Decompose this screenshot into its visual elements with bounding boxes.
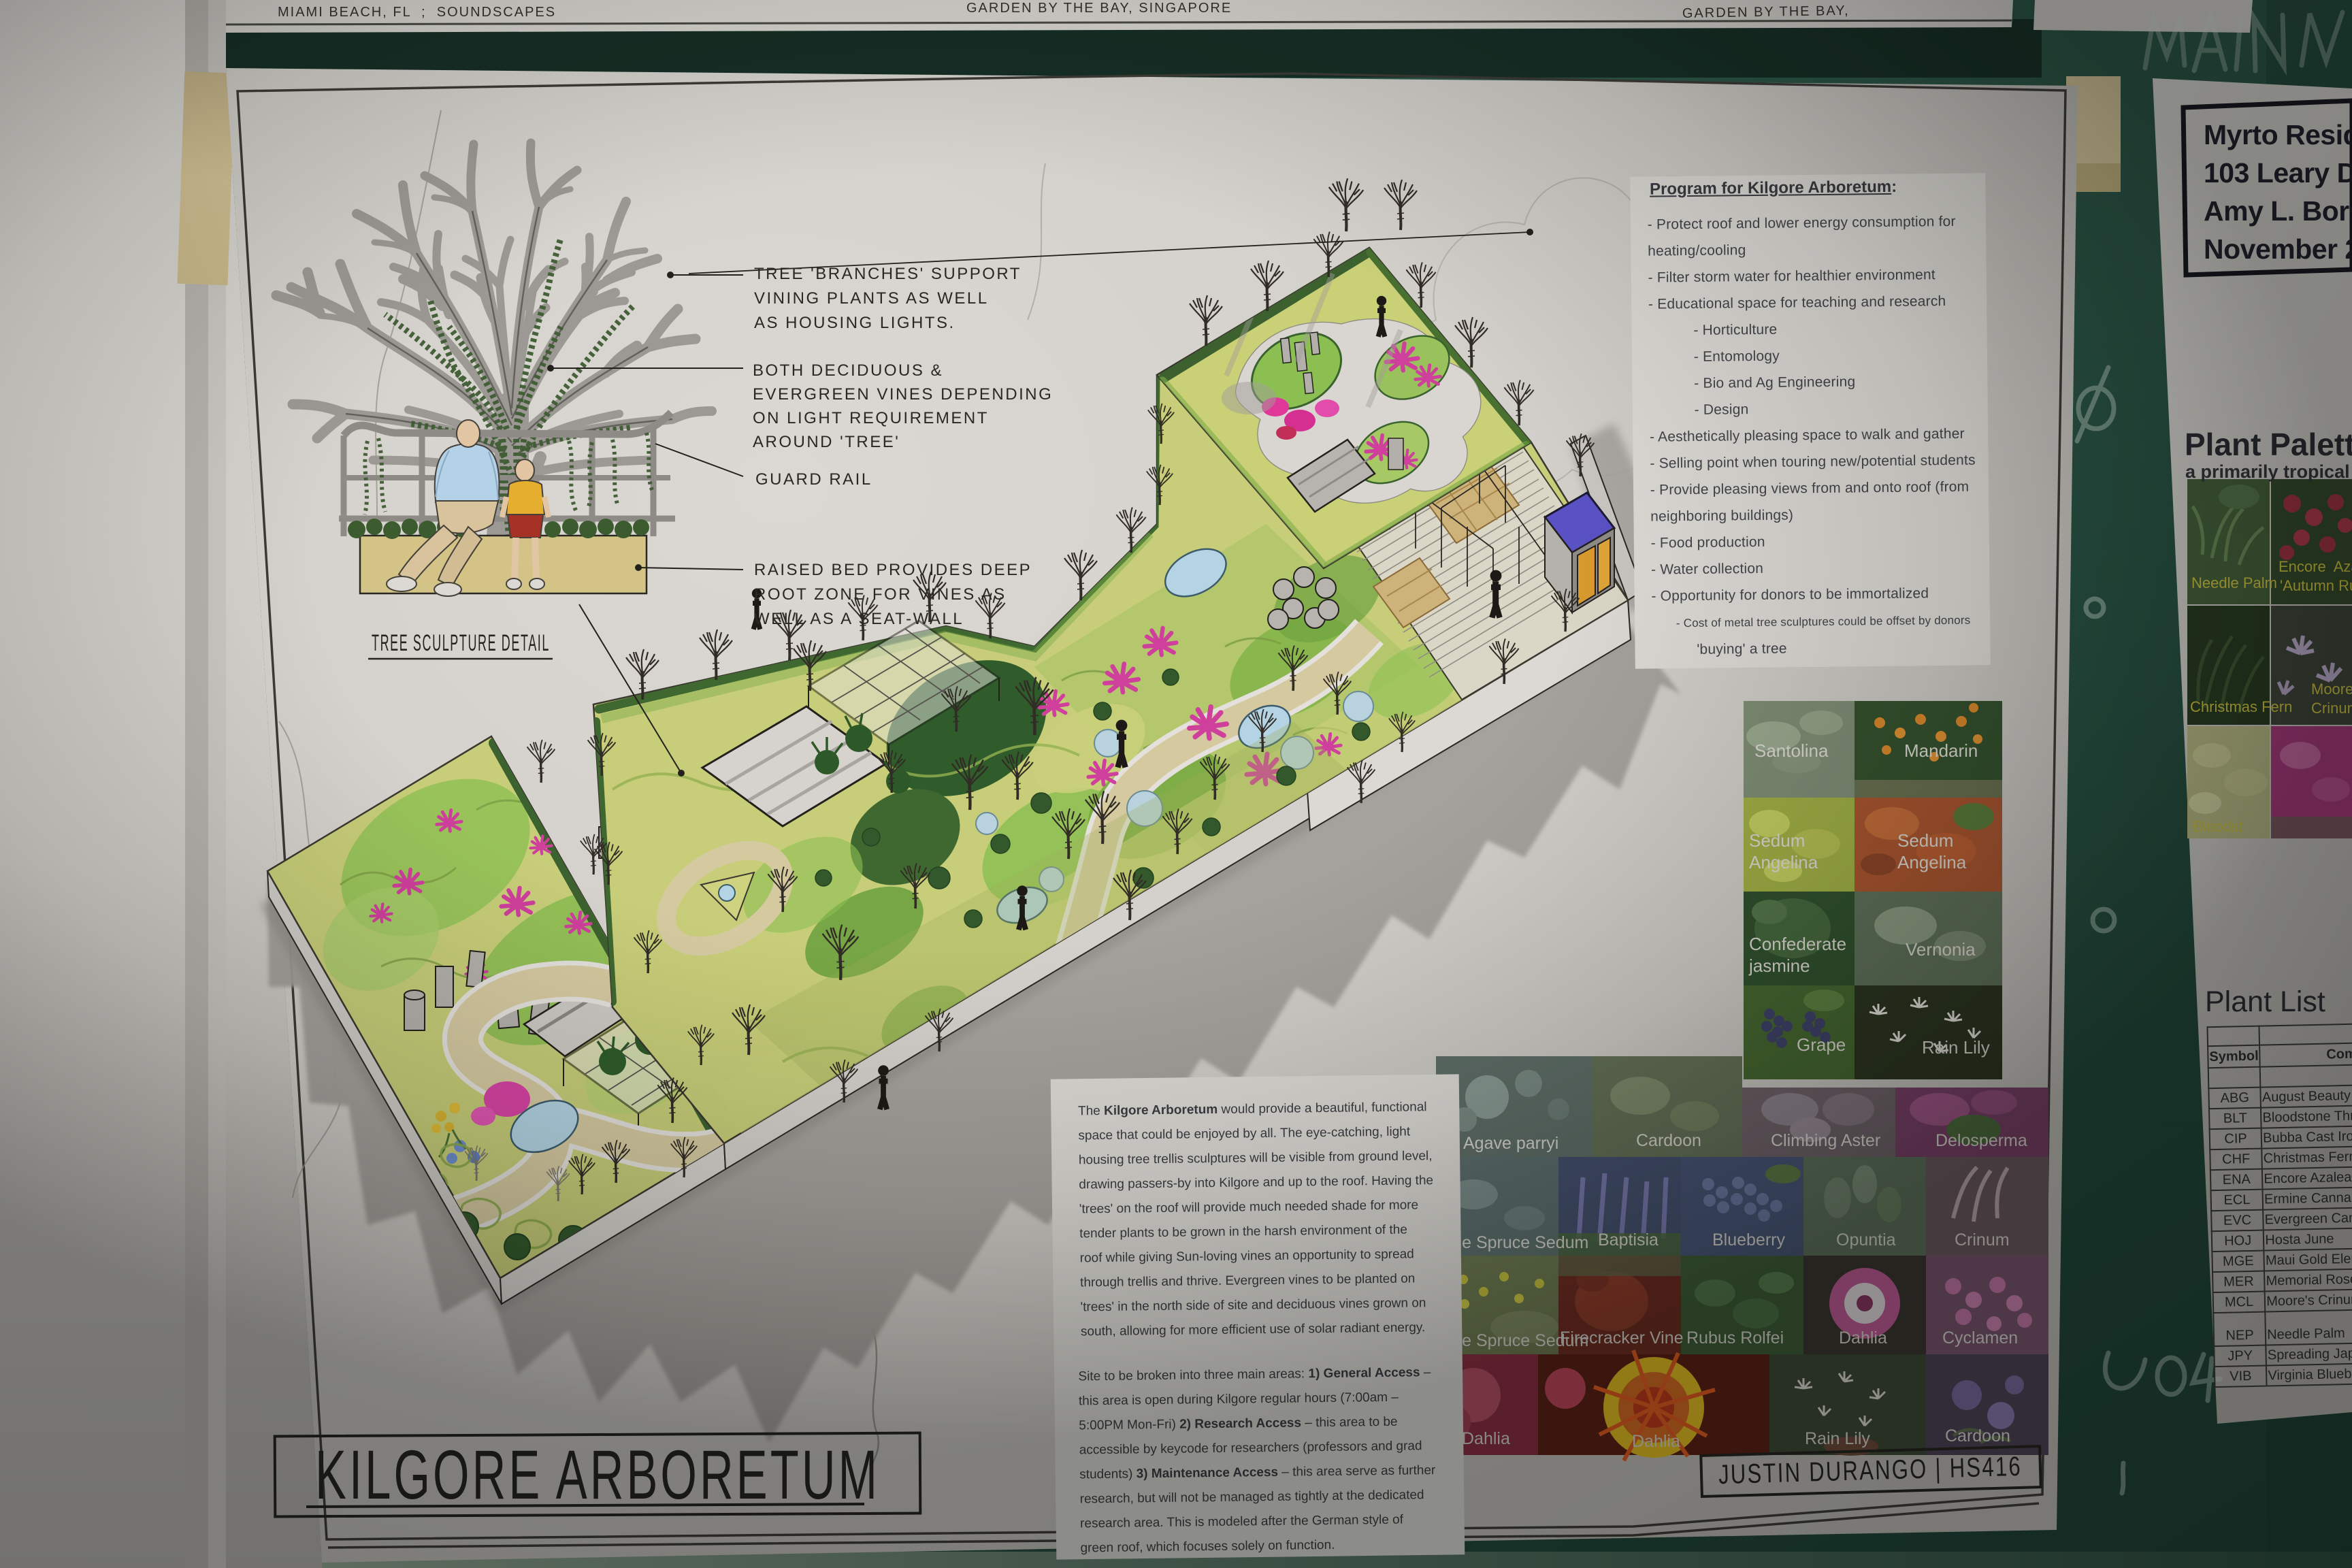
svg-text:Opuntia: Opuntia [1836, 1230, 1896, 1249]
svg-text:BOTH DECIDUOUS &: BOTH DECIDUOUS & [753, 361, 943, 380]
svg-text:VINING PLANTS AS WELL: VINING PLANTS AS WELL [754, 289, 989, 308]
svg-text:EVERGREEN VINES DEPENDING: EVERGREEN VINES DEPENDING [753, 385, 1053, 404]
svg-text:MIAMI BEACH, FL ; SOUNDSCAPE: MIAMI BEACH, FL ; SOUNDSCAPES [278, 5, 556, 20]
svg-text:Rain Lily: Rain Lily [1805, 1429, 1870, 1448]
svg-text:GUARD RAIL: GUARD RAIL [755, 470, 872, 489]
svg-text:ROOT ZONE FOR VINES AS: ROOT ZONE FOR VINES AS [754, 585, 1007, 604]
svg-text:Baptisia: Baptisia [1598, 1230, 1659, 1249]
svg-text:Sedum: Sedum [1749, 830, 1805, 851]
svg-text:Angelina: Angelina [1897, 852, 1967, 872]
svg-text:GARDEN BY THE BAY, SINGAPORE: GARDEN BY THE BAY, SINGAPORE [966, 1, 1232, 16]
svg-text:TREE 'BRANCHES' SUPPORT: TREE 'BRANCHES' SUPPORT [754, 265, 1022, 283]
svg-text:Rain Lily: Rain Lily [1922, 1037, 1990, 1058]
svg-text:Santolina: Santolina [1754, 740, 1829, 761]
svg-text:AROUND 'TREE': AROUND 'TREE' [753, 433, 900, 451]
svg-text:Dahlia: Dahlia [1839, 1328, 1887, 1347]
svg-text:Bloodst: Bloodst [2193, 818, 2242, 835]
svg-text:Needle Palm: Needle Palm [2191, 574, 2277, 591]
svg-text:Firecracker Vine: Firecracker Vine [1560, 1328, 1684, 1347]
svg-text:Cyclamen: Cyclamen [1942, 1328, 2018, 1347]
svg-text:Vernonia: Vernonia [1906, 939, 1976, 960]
svg-text:Mandarin: Mandarin [1904, 740, 1978, 761]
svg-text:Christmas Fern: Christmas Fern [2190, 698, 2292, 715]
svg-text:Crinum: Crinum [1955, 1230, 2010, 1249]
svg-text:Angelina: Angelina [1749, 852, 1818, 872]
svg-text:Moore's: Moore's [2311, 681, 2352, 698]
svg-text:ON LIGHT REQUIREMENT: ON LIGHT REQUIREMENT [753, 409, 989, 427]
svg-text:Dahlia: Dahlia [1462, 1429, 1510, 1448]
svg-text:Dahlia: Dahlia [1632, 1432, 1680, 1451]
svg-text:Encore Azale: Encore Azale [2278, 558, 2352, 575]
svg-text:AS HOUSING LIGHTS.: AS HOUSING LIGHTS. [754, 314, 955, 332]
svg-text:Confederate: Confederate [1749, 934, 1846, 954]
svg-text:Grape: Grape [1797, 1034, 1846, 1055]
svg-text:Blueberry: Blueberry [1712, 1230, 1785, 1249]
svg-text:Sedum: Sedum [1897, 830, 1953, 851]
svg-text:Agave parryi: Agave parryi [1463, 1134, 1558, 1153]
svg-text:Cardoon: Cardoon [1945, 1426, 2010, 1445]
svg-text:TREE SCULPTURE DETAIL: TREE SCULPTURE DETAIL [372, 630, 550, 656]
svg-text:GARDEN BY THE BAY,: GARDEN BY THE BAY, [1682, 3, 1850, 21]
svg-text:WELL AS A SEAT-WALL: WELL AS A SEAT-WALL [754, 610, 964, 628]
svg-text:JUSTIN DURANGO | HS416: JUSTIN DURANGO | HS416 [1718, 1452, 2023, 1490]
svg-text:KILGORE ARBORETUM: KILGORE ARBORETUM [315, 1436, 880, 1514]
svg-text:'Autumn Rub: 'Autumn Rub [2280, 577, 2352, 594]
svg-text:Cardoon: Cardoon [1636, 1131, 1701, 1150]
svg-text:RAISED BED PROVIDES DEEP: RAISED BED PROVIDES DEEP [754, 561, 1032, 579]
svg-text:Crinum Li: Crinum Li [2311, 700, 2352, 717]
svg-text:jasmine: jasmine [1748, 955, 1810, 976]
svg-text:Climbing Aster: Climbing Aster [1771, 1131, 1880, 1150]
svg-text:Delosperma: Delosperma [1935, 1131, 2027, 1150]
svg-text:Rubus Rolfei: Rubus Rolfei [1686, 1328, 1784, 1347]
